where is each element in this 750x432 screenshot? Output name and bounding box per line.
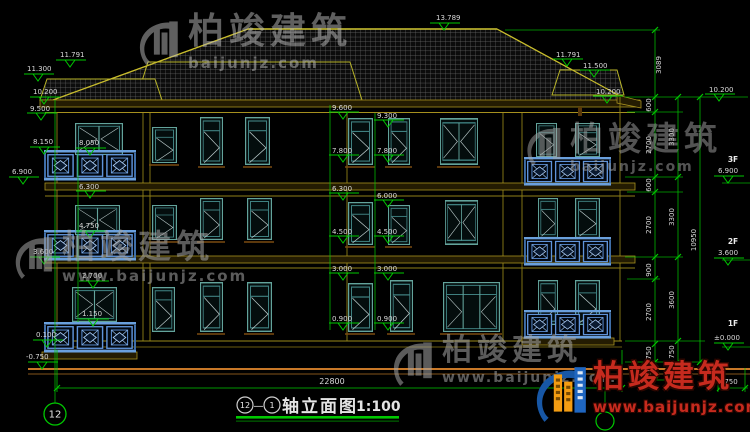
level-label: 10.200 (596, 88, 621, 96)
level-label: 3.000 (332, 265, 352, 273)
company-logo-icon (532, 362, 588, 424)
level-label: 0.900 (377, 315, 397, 323)
dimension-label: 2700 (645, 136, 653, 154)
floor-label: 2F (728, 237, 738, 246)
level-label: 6.300 (332, 185, 352, 193)
title-bubble-right: 1 (269, 401, 274, 410)
window (201, 199, 223, 240)
dimension-label: 750 (668, 345, 676, 358)
level-label: 6.000 (377, 192, 397, 200)
window (349, 203, 373, 245)
drawing-title: 12 — 1 轴立面图 1:100 (236, 396, 401, 422)
window (153, 288, 175, 332)
balcony-railing (524, 237, 611, 266)
level-label: 11.791 (60, 51, 85, 59)
title-text: 轴立面图 (282, 396, 358, 417)
company-logo: 柏竣建筑 www.baijunjz.com (532, 362, 750, 424)
window (153, 128, 177, 163)
axis-bubble-number: 12 (49, 410, 62, 421)
balcony-railing (44, 322, 136, 353)
title-underline (236, 416, 399, 419)
level-label: 7.800 (377, 147, 397, 155)
level-label: 11.300 (27, 65, 52, 73)
dimension-label: 3300 (668, 128, 676, 146)
title-bubble-left: 12 (240, 401, 250, 410)
level-label: 7.800 (332, 147, 352, 155)
level-label: 11.791 (556, 51, 581, 59)
window (248, 283, 272, 332)
dimension-label: 10950 (690, 229, 698, 251)
level-label: 1.150 (82, 310, 102, 318)
title-underline-thin (236, 421, 399, 422)
balcony-slab (522, 338, 614, 345)
level-label: -0.750 (26, 353, 49, 361)
balcony-railing (44, 230, 136, 261)
window (201, 118, 223, 165)
level-label: 3.600 (33, 248, 53, 256)
level-label: 4.750 (79, 222, 99, 230)
company-logo-url: www.baijunjz.com (593, 398, 750, 416)
level-label: 6.900 (718, 167, 738, 175)
window (349, 119, 373, 165)
level-label: 9.300 (377, 112, 397, 120)
level-label: 6.900 (12, 168, 32, 176)
window (445, 201, 477, 244)
balcony-railing (524, 310, 611, 339)
level-label: 9.500 (30, 105, 50, 113)
level-label: 8.050 (79, 139, 99, 147)
window (248, 199, 272, 240)
level-label: 9.600 (332, 104, 352, 112)
dimension-label: 750 (645, 346, 653, 359)
window (153, 206, 177, 240)
level-label: 3.000 (377, 265, 397, 273)
level-label: 4.500 (332, 228, 352, 236)
window (576, 199, 600, 238)
level-label: 0.900 (332, 315, 352, 323)
dimension-label: 3089 (655, 56, 663, 74)
balcony-railing (524, 157, 611, 186)
downspout (578, 107, 582, 116)
level-label: 0.100 (36, 331, 56, 339)
company-logo-brand: 柏竣建筑 (593, 362, 750, 393)
dimension-label: 3300 (668, 208, 676, 226)
dimension-label: 600 (645, 98, 653, 111)
cad-elevation-screenshot: 600 2700 600 2700 900 2700 750 750 3300 … (0, 0, 750, 432)
level-label: 10.200 (709, 86, 734, 94)
floor-label: 3F (728, 155, 738, 164)
window (576, 123, 600, 156)
floor-label: 1F (728, 319, 738, 328)
level-label: 2.700 (82, 272, 102, 280)
dimension-label: 2700 (645, 303, 653, 321)
level-label: 13.789 (436, 14, 461, 22)
level-label: 6.300 (79, 183, 99, 191)
level-label: ±0.000 (714, 334, 740, 342)
dimension-label: 3600 (668, 291, 676, 309)
dimension-label: 22800 (319, 377, 344, 386)
window (201, 283, 223, 332)
window (440, 119, 477, 164)
company-logo-text: 柏竣建筑 www.baijunjz.com (593, 362, 750, 416)
title-scale: 1:100 (356, 399, 401, 415)
window (349, 284, 373, 332)
window (391, 281, 413, 332)
level-label: 4.500 (377, 228, 397, 236)
title-separator: — (254, 401, 264, 412)
level-label: 3.600 (718, 249, 738, 257)
window (246, 118, 270, 165)
roof (40, 29, 624, 101)
dimension-label: 600 (645, 178, 653, 191)
balcony-slab (42, 352, 137, 359)
window (537, 123, 557, 156)
window (538, 199, 557, 238)
level-label: 8.150 (33, 138, 53, 146)
dimension-label: 2700 (645, 216, 653, 234)
window (444, 283, 500, 332)
level-label: 11.500 (583, 62, 608, 70)
dimension-label: 900 (645, 263, 653, 276)
level-label: 10.200 (33, 88, 58, 96)
balconies (44, 150, 611, 353)
